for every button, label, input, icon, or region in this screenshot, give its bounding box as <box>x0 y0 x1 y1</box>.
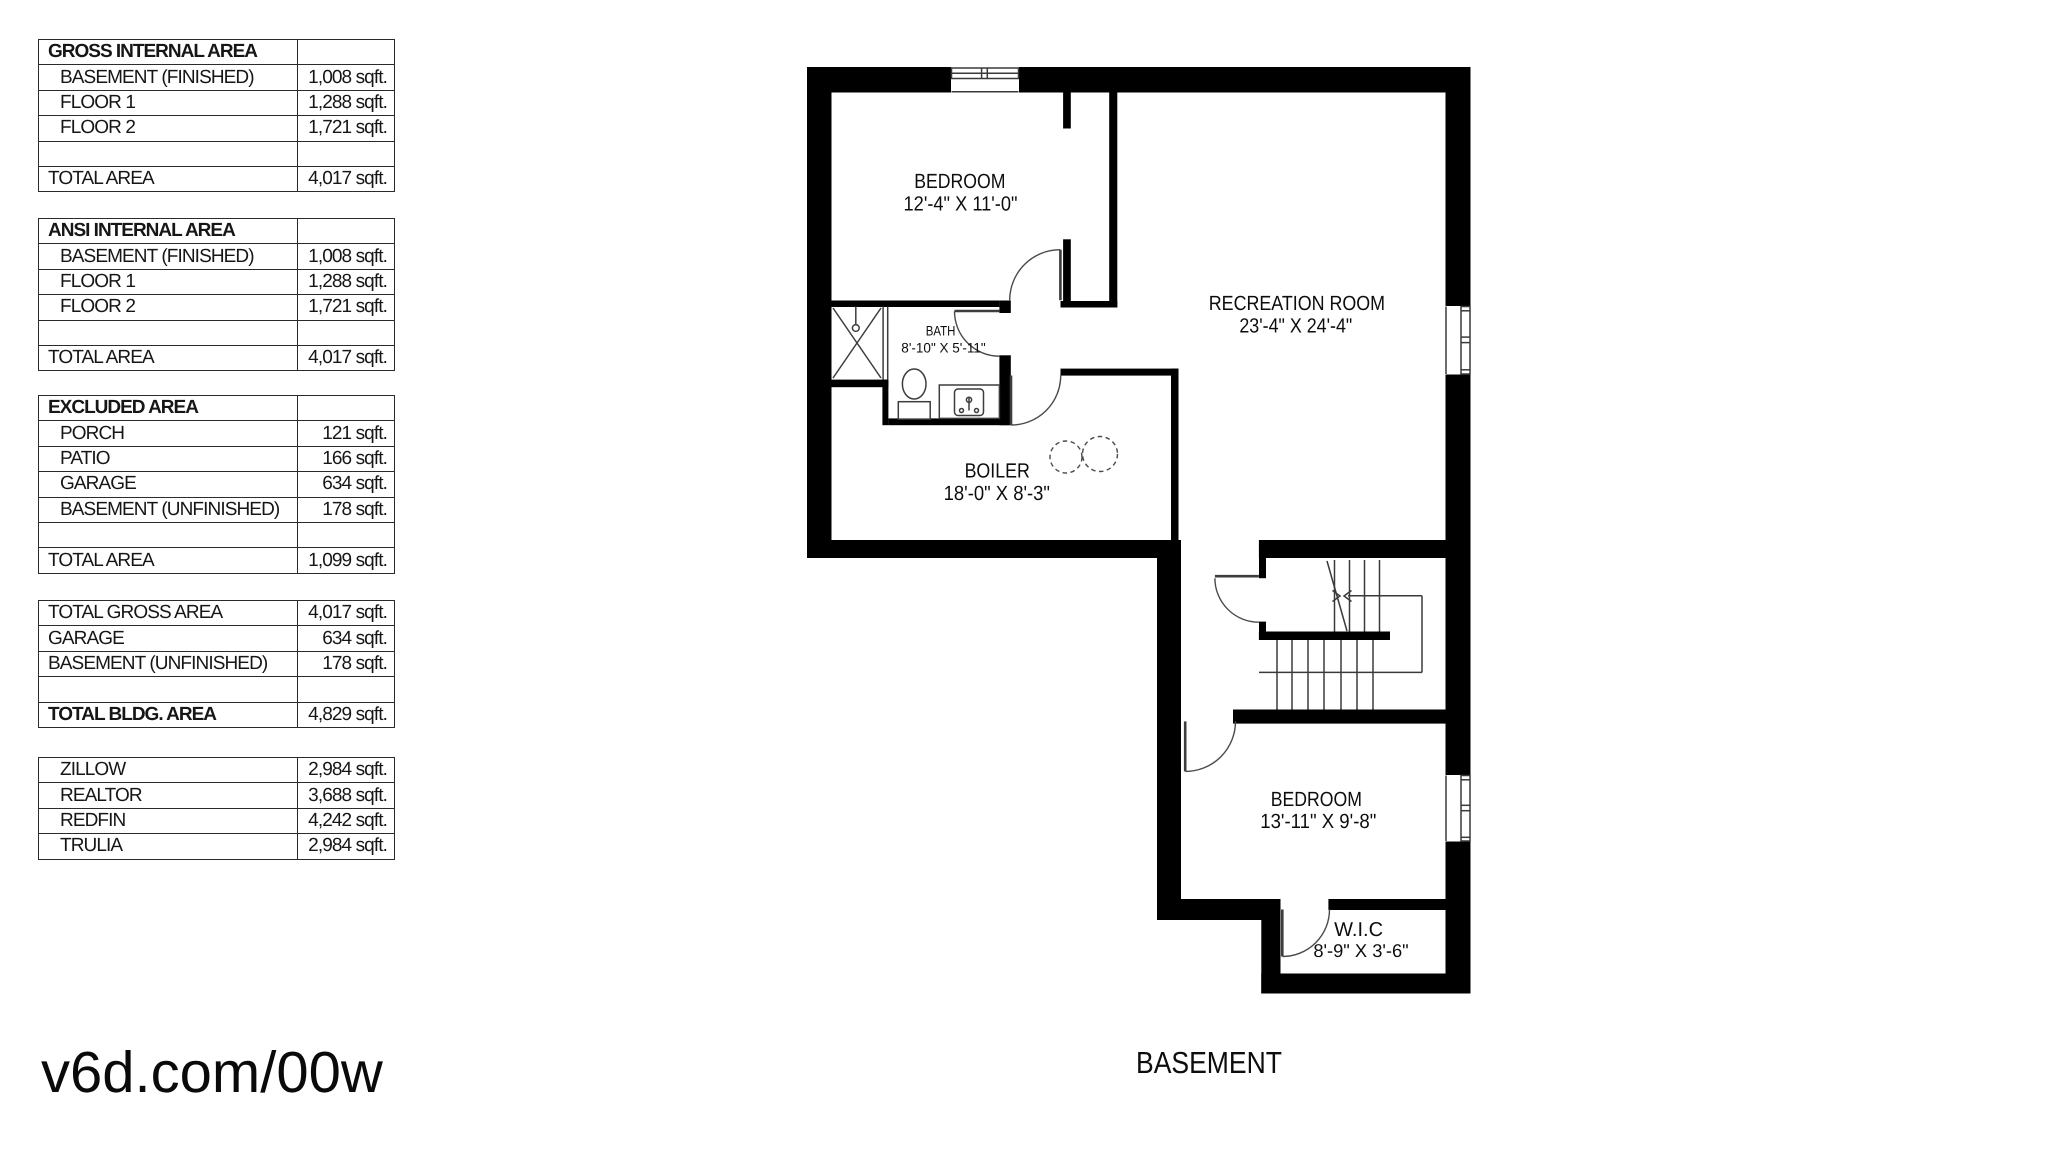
svg-text:BASEMENT: BASEMENT <box>1136 1046 1282 1080</box>
svg-text:8'-9" X 3'-6": 8'-9" X 3'-6" <box>1313 940 1408 961</box>
svg-text:12'-4" X 11'-0": 12'-4" X 11'-0" <box>904 192 1018 215</box>
svg-text:BEDROOM: BEDROOM <box>914 170 1005 193</box>
svg-text:W.I.C: W.I.C <box>1334 919 1383 941</box>
svg-text:8'-10" X 5'-11": 8'-10" X 5'-11" <box>901 340 986 355</box>
svg-text:BOILER: BOILER <box>965 460 1030 483</box>
svg-text:BATH: BATH <box>926 324 956 339</box>
svg-text:RECREATION ROOM: RECREATION ROOM <box>1209 292 1385 315</box>
svg-text:13'-11" X 9'-8": 13'-11" X 9'-8" <box>1260 810 1376 833</box>
svg-text:BEDROOM: BEDROOM <box>1271 788 1362 811</box>
svg-text:23'-4" X 24'-4": 23'-4" X 24'-4" <box>1239 315 1352 338</box>
svg-text:18'-0" X 8'-3": 18'-0" X 8'-3" <box>944 482 1050 505</box>
